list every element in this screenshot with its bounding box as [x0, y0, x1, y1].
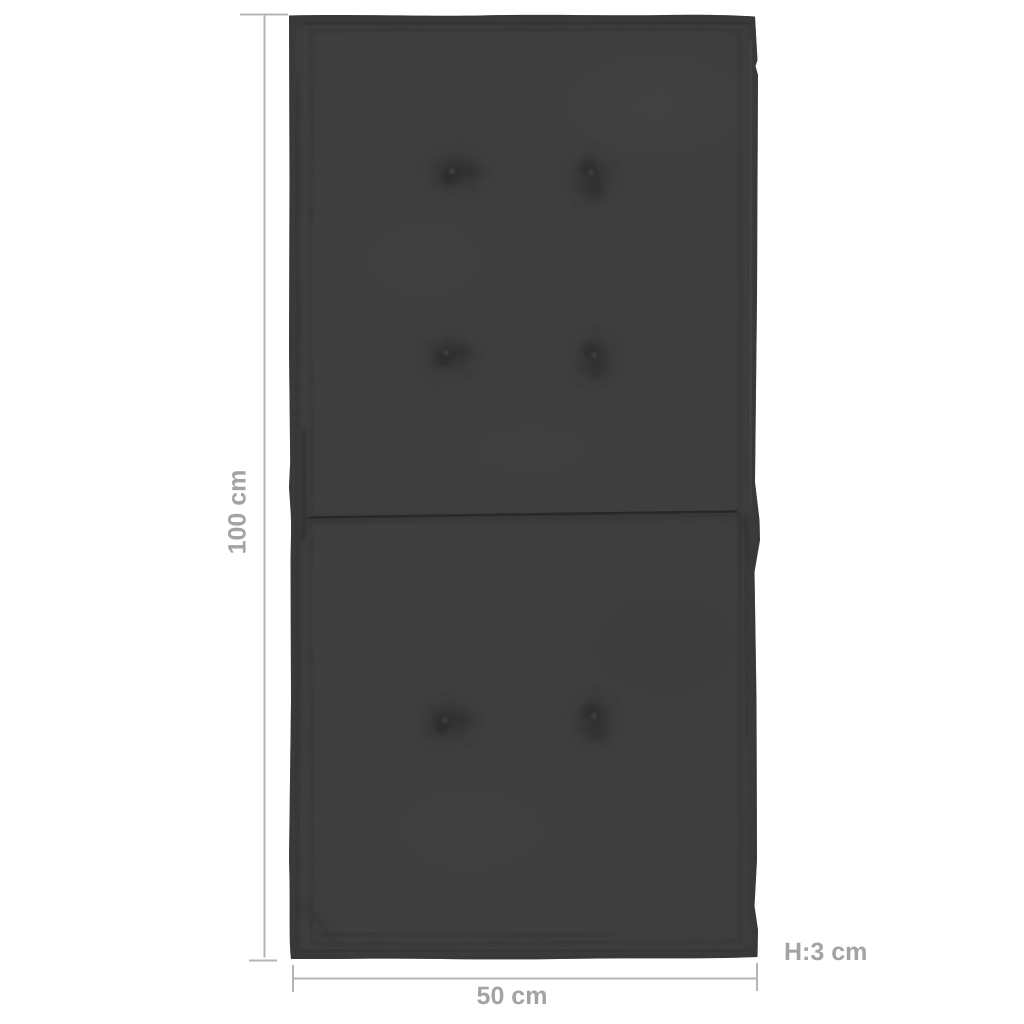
svg-text:H:3 cm: H:3 cm: [784, 938, 867, 966]
svg-text:50 cm: 50 cm: [477, 982, 548, 1010]
svg-text:100 cm: 100 cm: [224, 470, 252, 555]
